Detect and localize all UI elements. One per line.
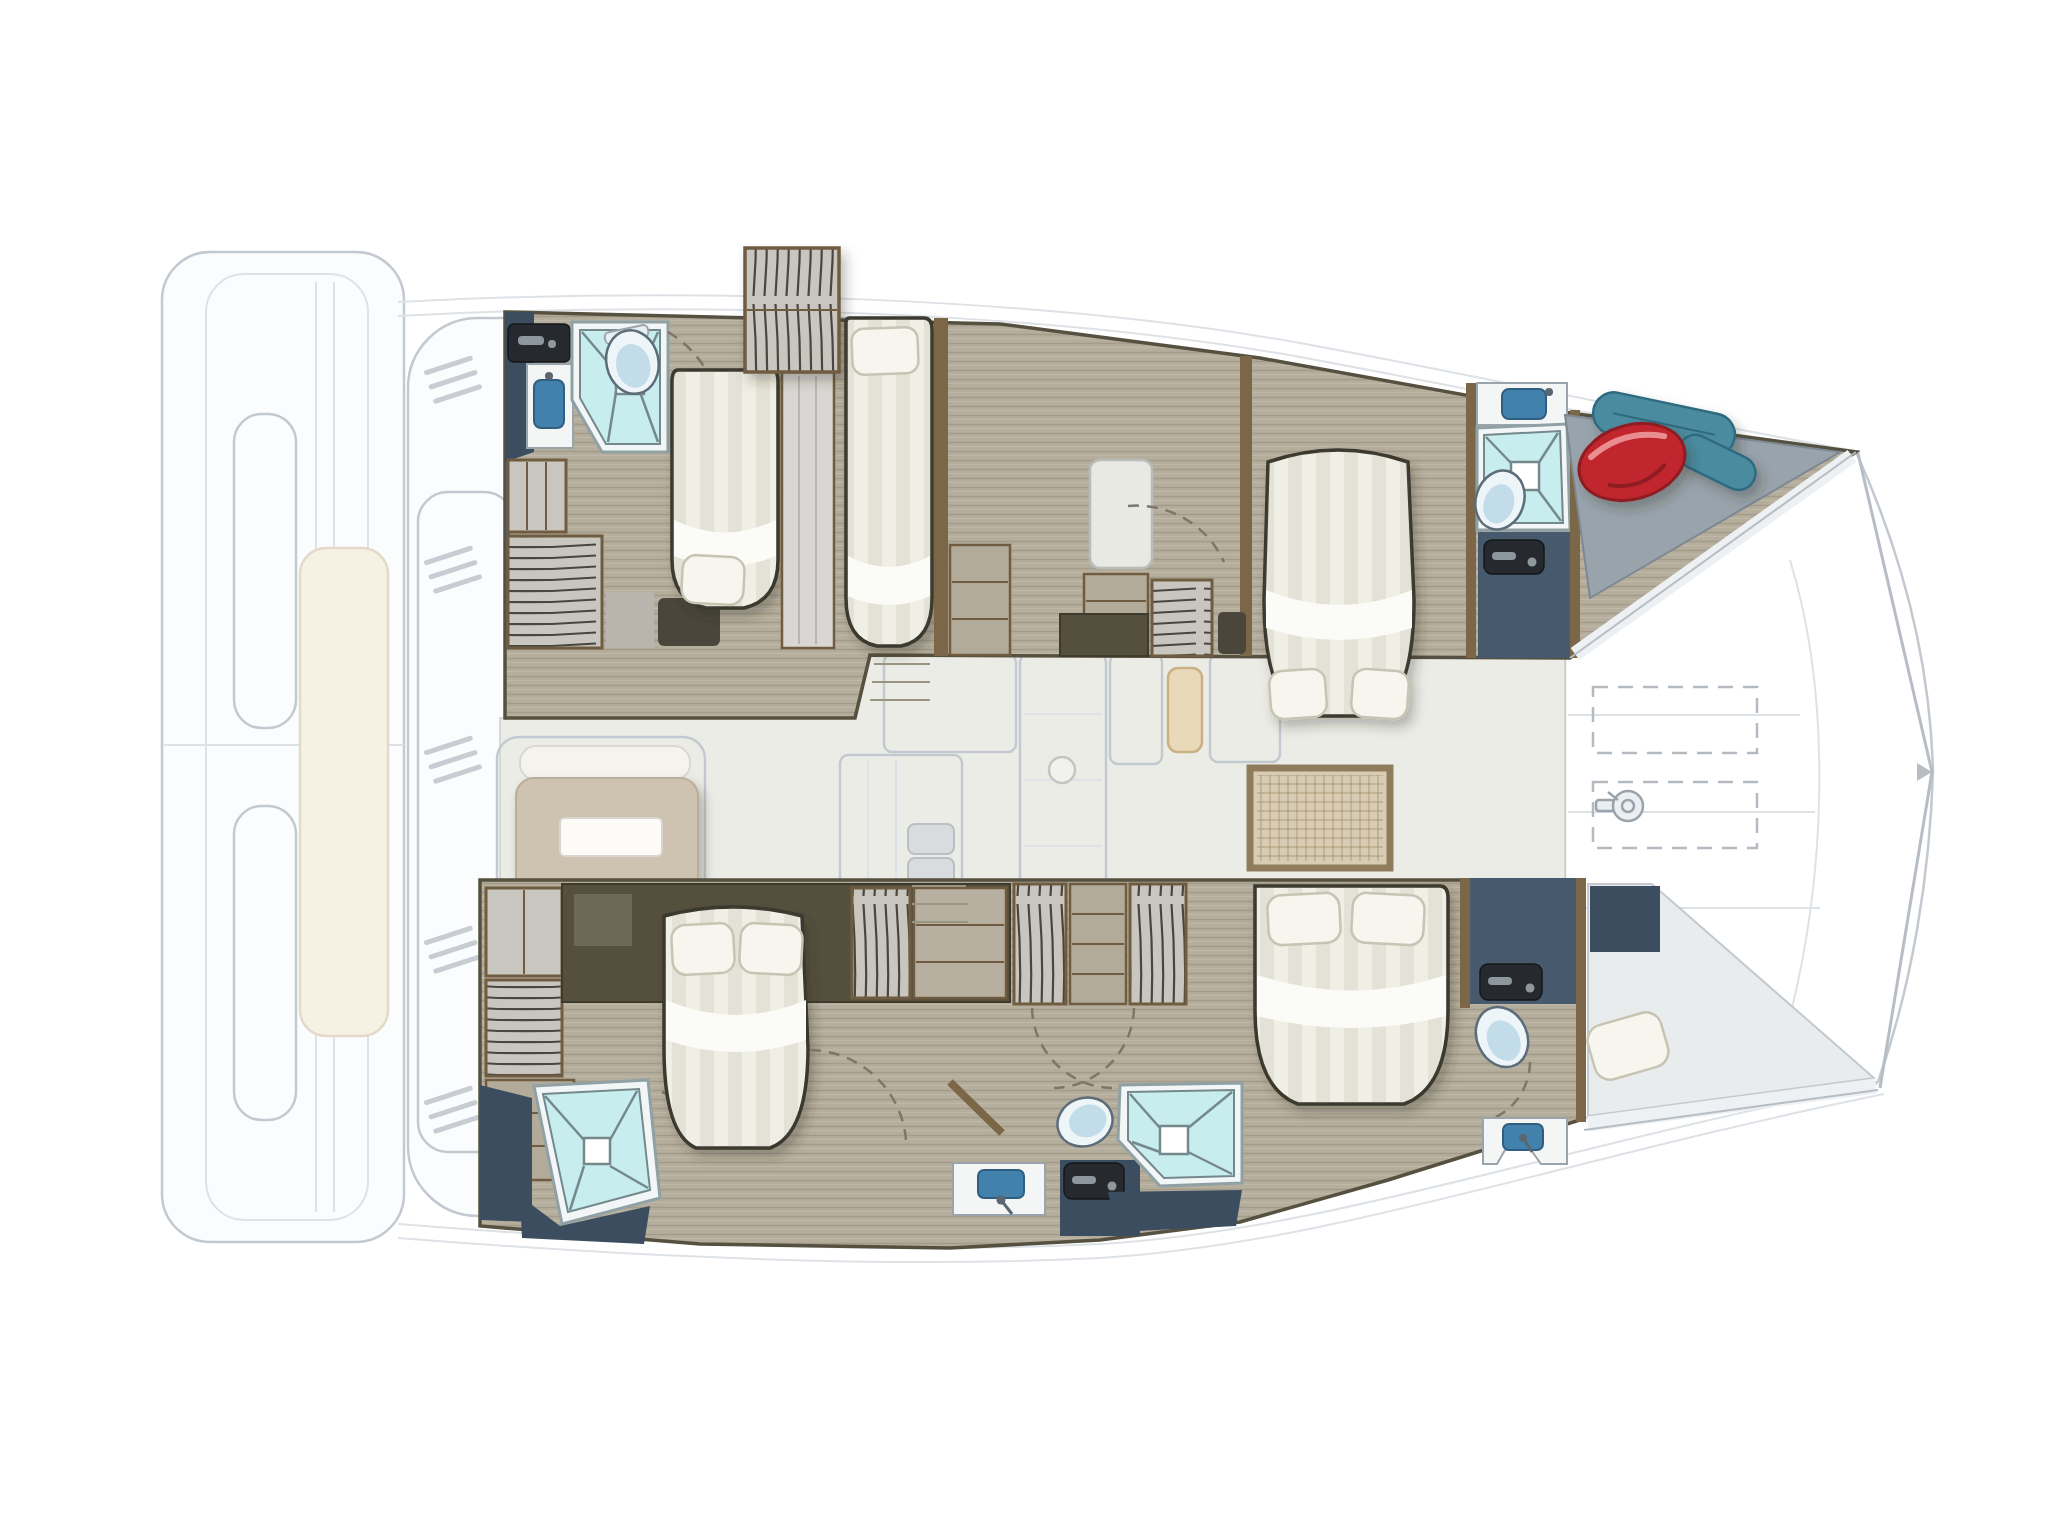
pillow-icon — [1350, 668, 1409, 720]
double-bed-icon — [1255, 886, 1448, 1104]
pillow-icon — [1351, 892, 1426, 946]
port-forward-bathroom — [1466, 383, 1580, 658]
entry-door-frame — [1168, 668, 1202, 752]
double-bed-icon — [672, 370, 778, 608]
double-bed-icon — [1264, 450, 1414, 720]
wardrobe-icon — [950, 545, 1010, 655]
pillow-icon — [671, 922, 736, 975]
pillow-icon — [739, 922, 804, 975]
seat-bench — [1090, 460, 1152, 568]
entry-step — [908, 824, 954, 854]
anchor-hatch-dashed — [1593, 687, 1757, 753]
sink-icon — [978, 1170, 1024, 1198]
port-hull — [505, 248, 1856, 720]
low-cabinet — [1060, 614, 1148, 656]
hanging-locker-icon — [745, 248, 839, 372]
bulkhead — [1240, 356, 1252, 656]
pillow-icon — [851, 327, 919, 375]
double-bed-icon — [664, 907, 808, 1148]
bulkhead — [1576, 878, 1586, 1122]
single-bed-icon — [846, 318, 932, 646]
woven-mat — [1250, 768, 1390, 868]
windlass-icon — [1596, 791, 1643, 821]
bulkhead — [1460, 878, 1470, 1008]
sofa-backrest — [520, 746, 690, 780]
cockpit-table-ghost — [300, 548, 388, 1036]
floor-mat — [606, 592, 654, 648]
sofa-table — [560, 818, 662, 856]
bowsprit-bridle — [1858, 453, 1932, 1088]
bulkhead — [1466, 383, 1476, 658]
sink-icon — [534, 380, 564, 428]
pillow-icon — [1267, 892, 1342, 946]
starboard-hull — [480, 878, 1878, 1248]
catamaran-deck-plan — [0, 0, 2048, 1536]
pillow-icon — [1268, 668, 1327, 720]
bulkhead — [934, 318, 948, 656]
starboard-bow-berth — [1584, 884, 1878, 1130]
table-foot — [1049, 757, 1075, 783]
sink-icon — [1502, 389, 1546, 419]
pillow-icon — [681, 554, 745, 605]
wardrobe-icon — [508, 460, 566, 532]
nightstand — [1218, 612, 1246, 654]
catamaran-floorplan-page — [0, 0, 2048, 1536]
cabin-divider — [782, 372, 834, 648]
